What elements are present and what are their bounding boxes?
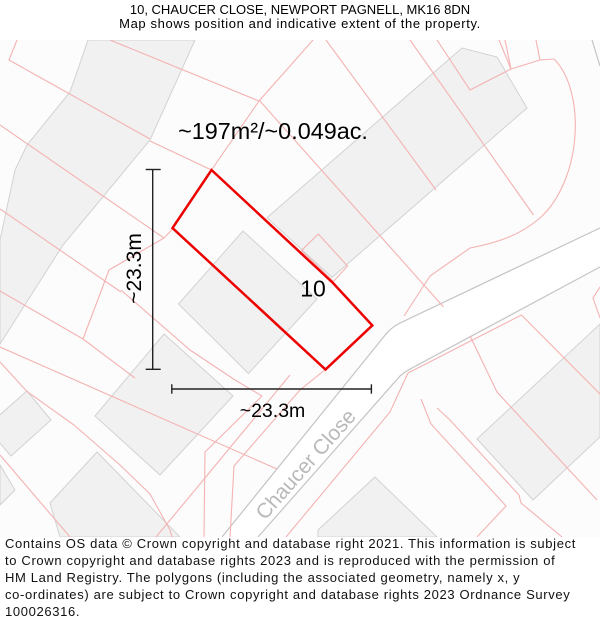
svg-text:~197m²/~0.049ac.: ~197m²/~0.049ac. xyxy=(178,118,368,144)
svg-text:~23.3m: ~23.3m xyxy=(123,233,146,304)
svg-text:~23.3m: ~23.3m xyxy=(240,400,306,422)
svg-text:10: 10 xyxy=(300,276,326,302)
